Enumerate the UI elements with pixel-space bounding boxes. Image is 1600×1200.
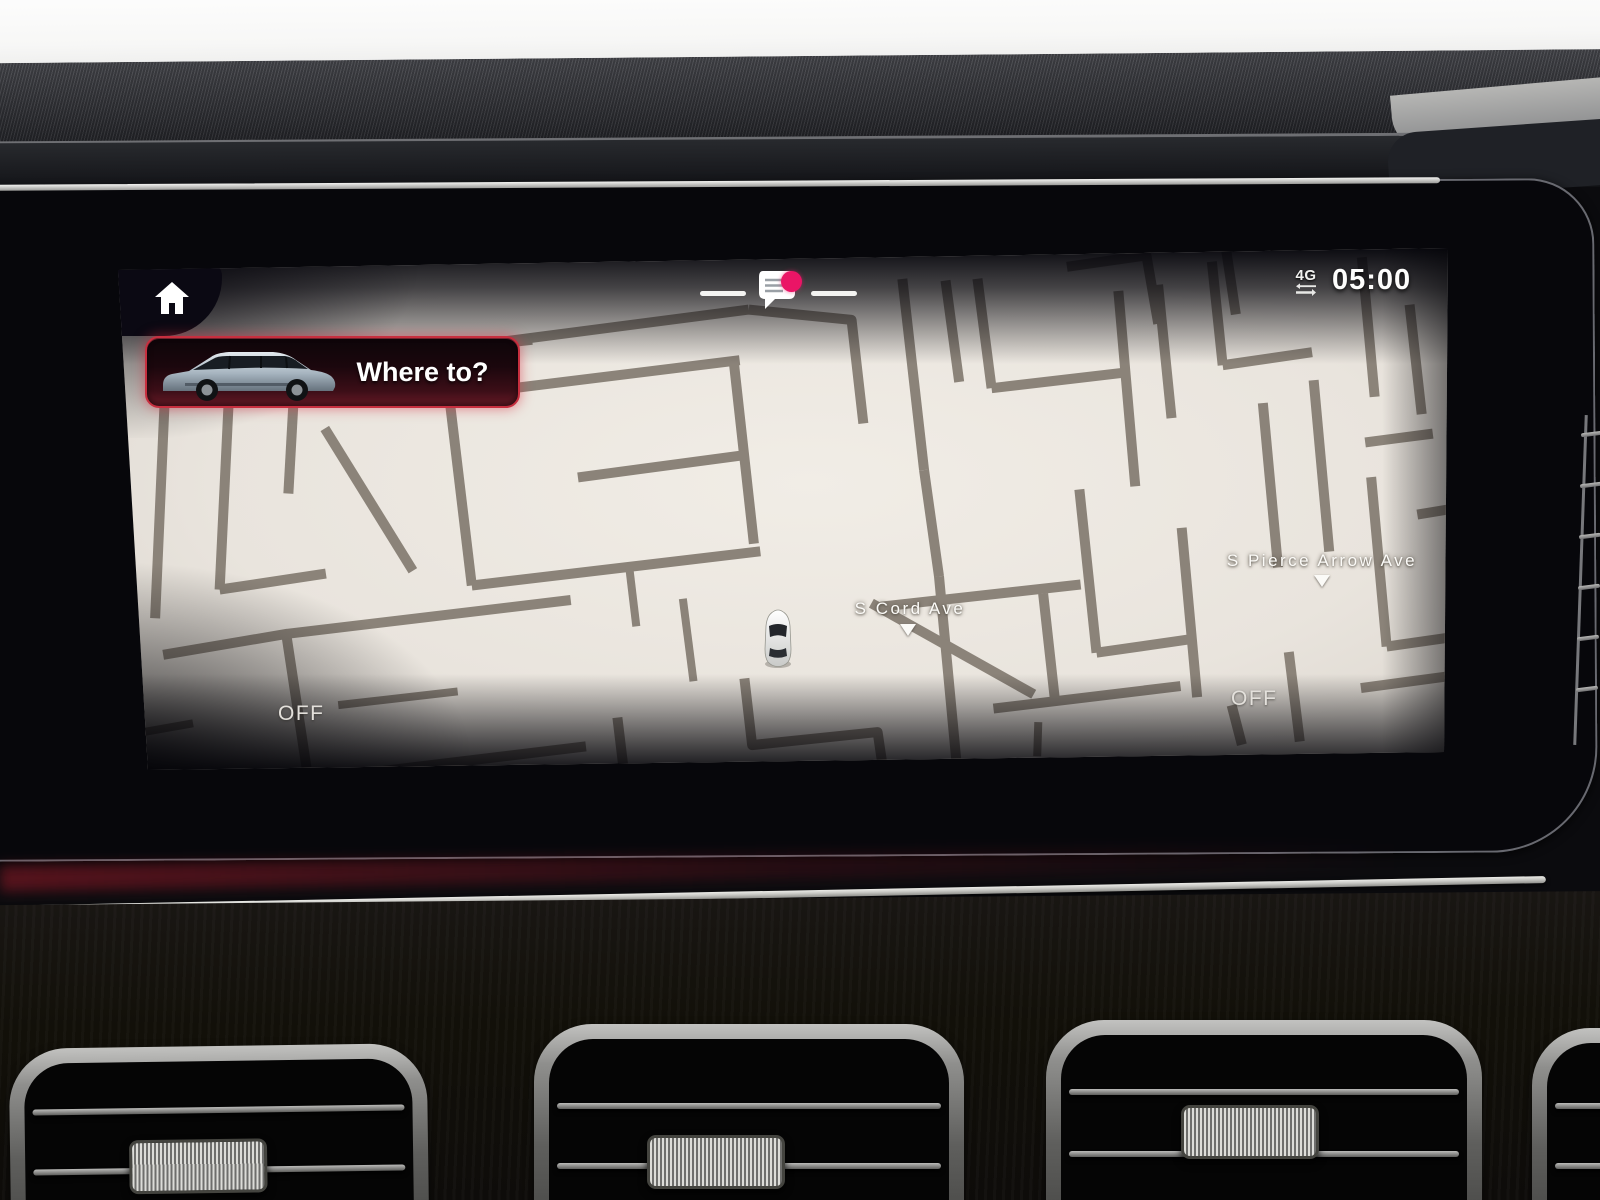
vent-knob	[129, 1138, 268, 1194]
street-name: S Pierce Arrow Ave	[1227, 551, 1417, 570]
street-label: S Cord Ave	[760, 599, 1060, 619]
car-dashboard-scene: Where to? 4G 05:00 S C	[0, 0, 1600, 1200]
air-vent	[9, 1043, 430, 1200]
suv-side-view-image	[155, 343, 343, 403]
vent-slat	[1555, 1163, 1600, 1169]
notification-handle[interactable]	[693, 266, 869, 316]
street-label: S Pierce Arrow Ave	[1172, 551, 1472, 571]
air-vent-opening	[1061, 1035, 1467, 1200]
air-vent	[534, 1024, 964, 1200]
street-marker-icon	[1314, 575, 1330, 587]
air-vent-opening	[1547, 1043, 1600, 1200]
home-icon	[154, 280, 190, 316]
vent-knob	[647, 1135, 785, 1189]
vent-slat	[1555, 1103, 1600, 1109]
data-transfer-arrows-icon	[1294, 283, 1318, 296]
climate-off-left[interactable]: OFF	[278, 702, 325, 726]
status-bar: 4G 05:00	[1294, 264, 1444, 306]
air-vent-opening	[549, 1039, 949, 1200]
where-to-label: Where to?	[337, 338, 508, 406]
notification-badge	[781, 271, 802, 292]
climate-off-right[interactable]: OFF	[1231, 687, 1278, 711]
car-top-view-icon	[762, 609, 794, 669]
clock: 05:00	[1332, 264, 1411, 297]
handle-dash-right-icon	[811, 291, 857, 296]
infotainment-screen[interactable]: Where to? 4G 05:00 S C	[118, 248, 1448, 770]
street-name: S Cord Ave	[855, 599, 966, 618]
vent-slat	[1069, 1089, 1459, 1095]
network-indicator: 4G	[1294, 269, 1318, 296]
vent-slat	[32, 1104, 404, 1115]
air-vent	[1532, 1028, 1600, 1200]
where-to-button[interactable]: Where to?	[145, 336, 520, 408]
vent-slat	[557, 1103, 941, 1109]
handle-dash-left-icon	[700, 291, 746, 296]
air-vent	[1046, 1020, 1482, 1200]
vent-knob	[1181, 1105, 1319, 1159]
street-marker-icon	[900, 624, 916, 636]
air-vent-opening	[24, 1058, 415, 1200]
network-label: 4G	[1295, 269, 1316, 283]
